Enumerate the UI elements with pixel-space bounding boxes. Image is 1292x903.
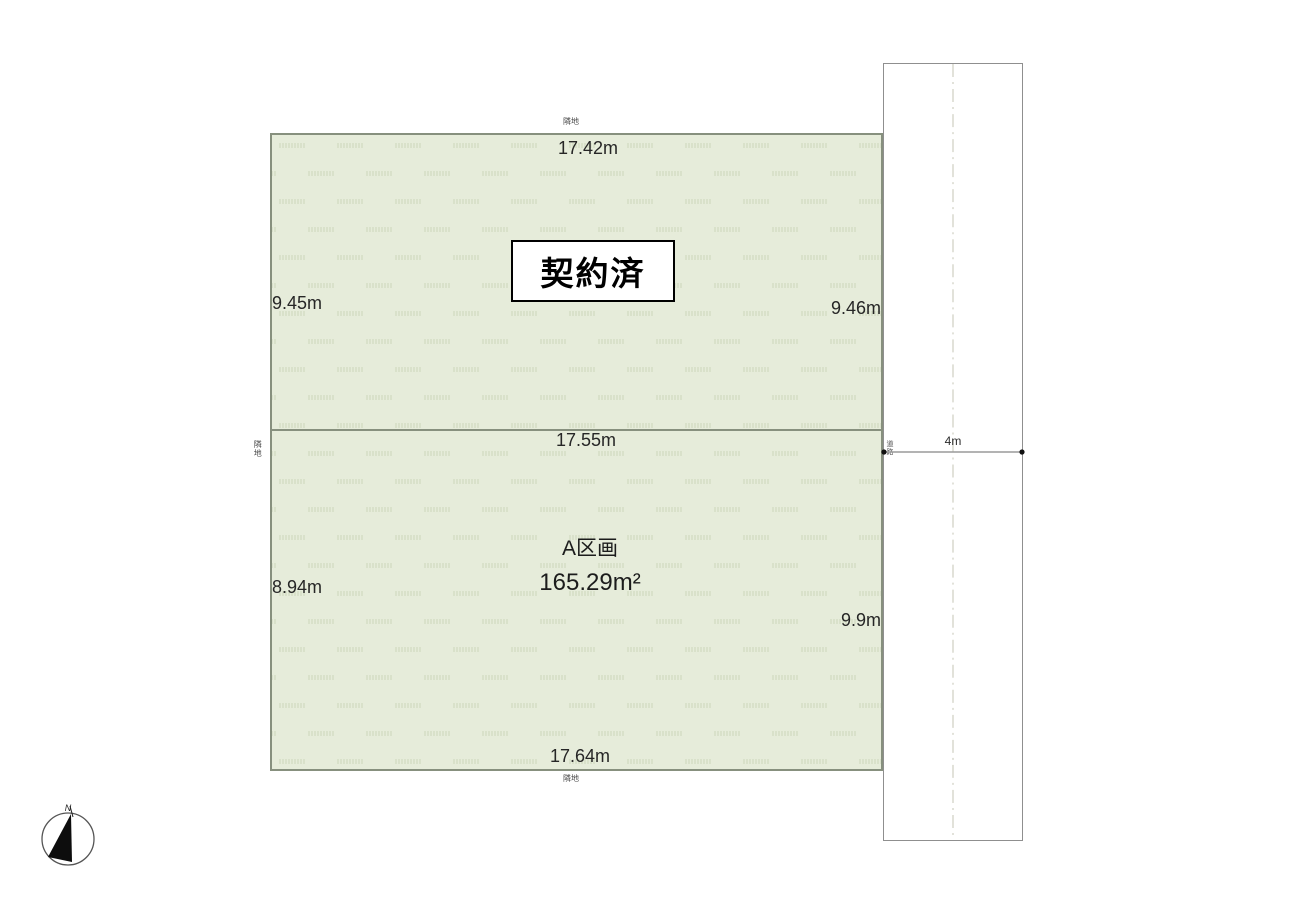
- adjacent-label-south: 隣地: [541, 774, 601, 783]
- road: [883, 63, 1023, 841]
- road-width-label: 4m: [903, 435, 1003, 449]
- compass-north-label: N: [65, 803, 72, 813]
- lot-name: A区画: [490, 537, 690, 561]
- dim-bottom-east: 9.9m: [781, 610, 881, 631]
- road-centerline: [884, 64, 1022, 840]
- dim-bottom-west: 8.94m: [272, 577, 322, 598]
- lot-area: 165.29m²: [465, 569, 715, 597]
- dim-top-east: 9.46m: [781, 298, 881, 319]
- dim-top-west: 9.45m: [272, 293, 322, 314]
- dim-bottom-south: 17.64m: [480, 746, 680, 767]
- compass: N: [42, 803, 94, 865]
- land-plot-diagram: 17.42m 契約済 9.45m 9.46m 17.55m A区画 165.29…: [0, 0, 1292, 903]
- dim-top-north: 17.42m: [488, 138, 688, 159]
- adjacent-label-north: 隣地: [541, 117, 601, 126]
- grass-texture: [272, 135, 881, 769]
- dim-bottom-north: 17.55m: [486, 430, 686, 451]
- plot-area: [270, 133, 883, 771]
- status-badge-sold-label: 契約済: [541, 247, 646, 295]
- road-side-label: 道路: [885, 440, 893, 456]
- status-badge-sold: 契約済: [511, 240, 675, 302]
- adjacent-label-west: 隣地: [253, 440, 262, 458]
